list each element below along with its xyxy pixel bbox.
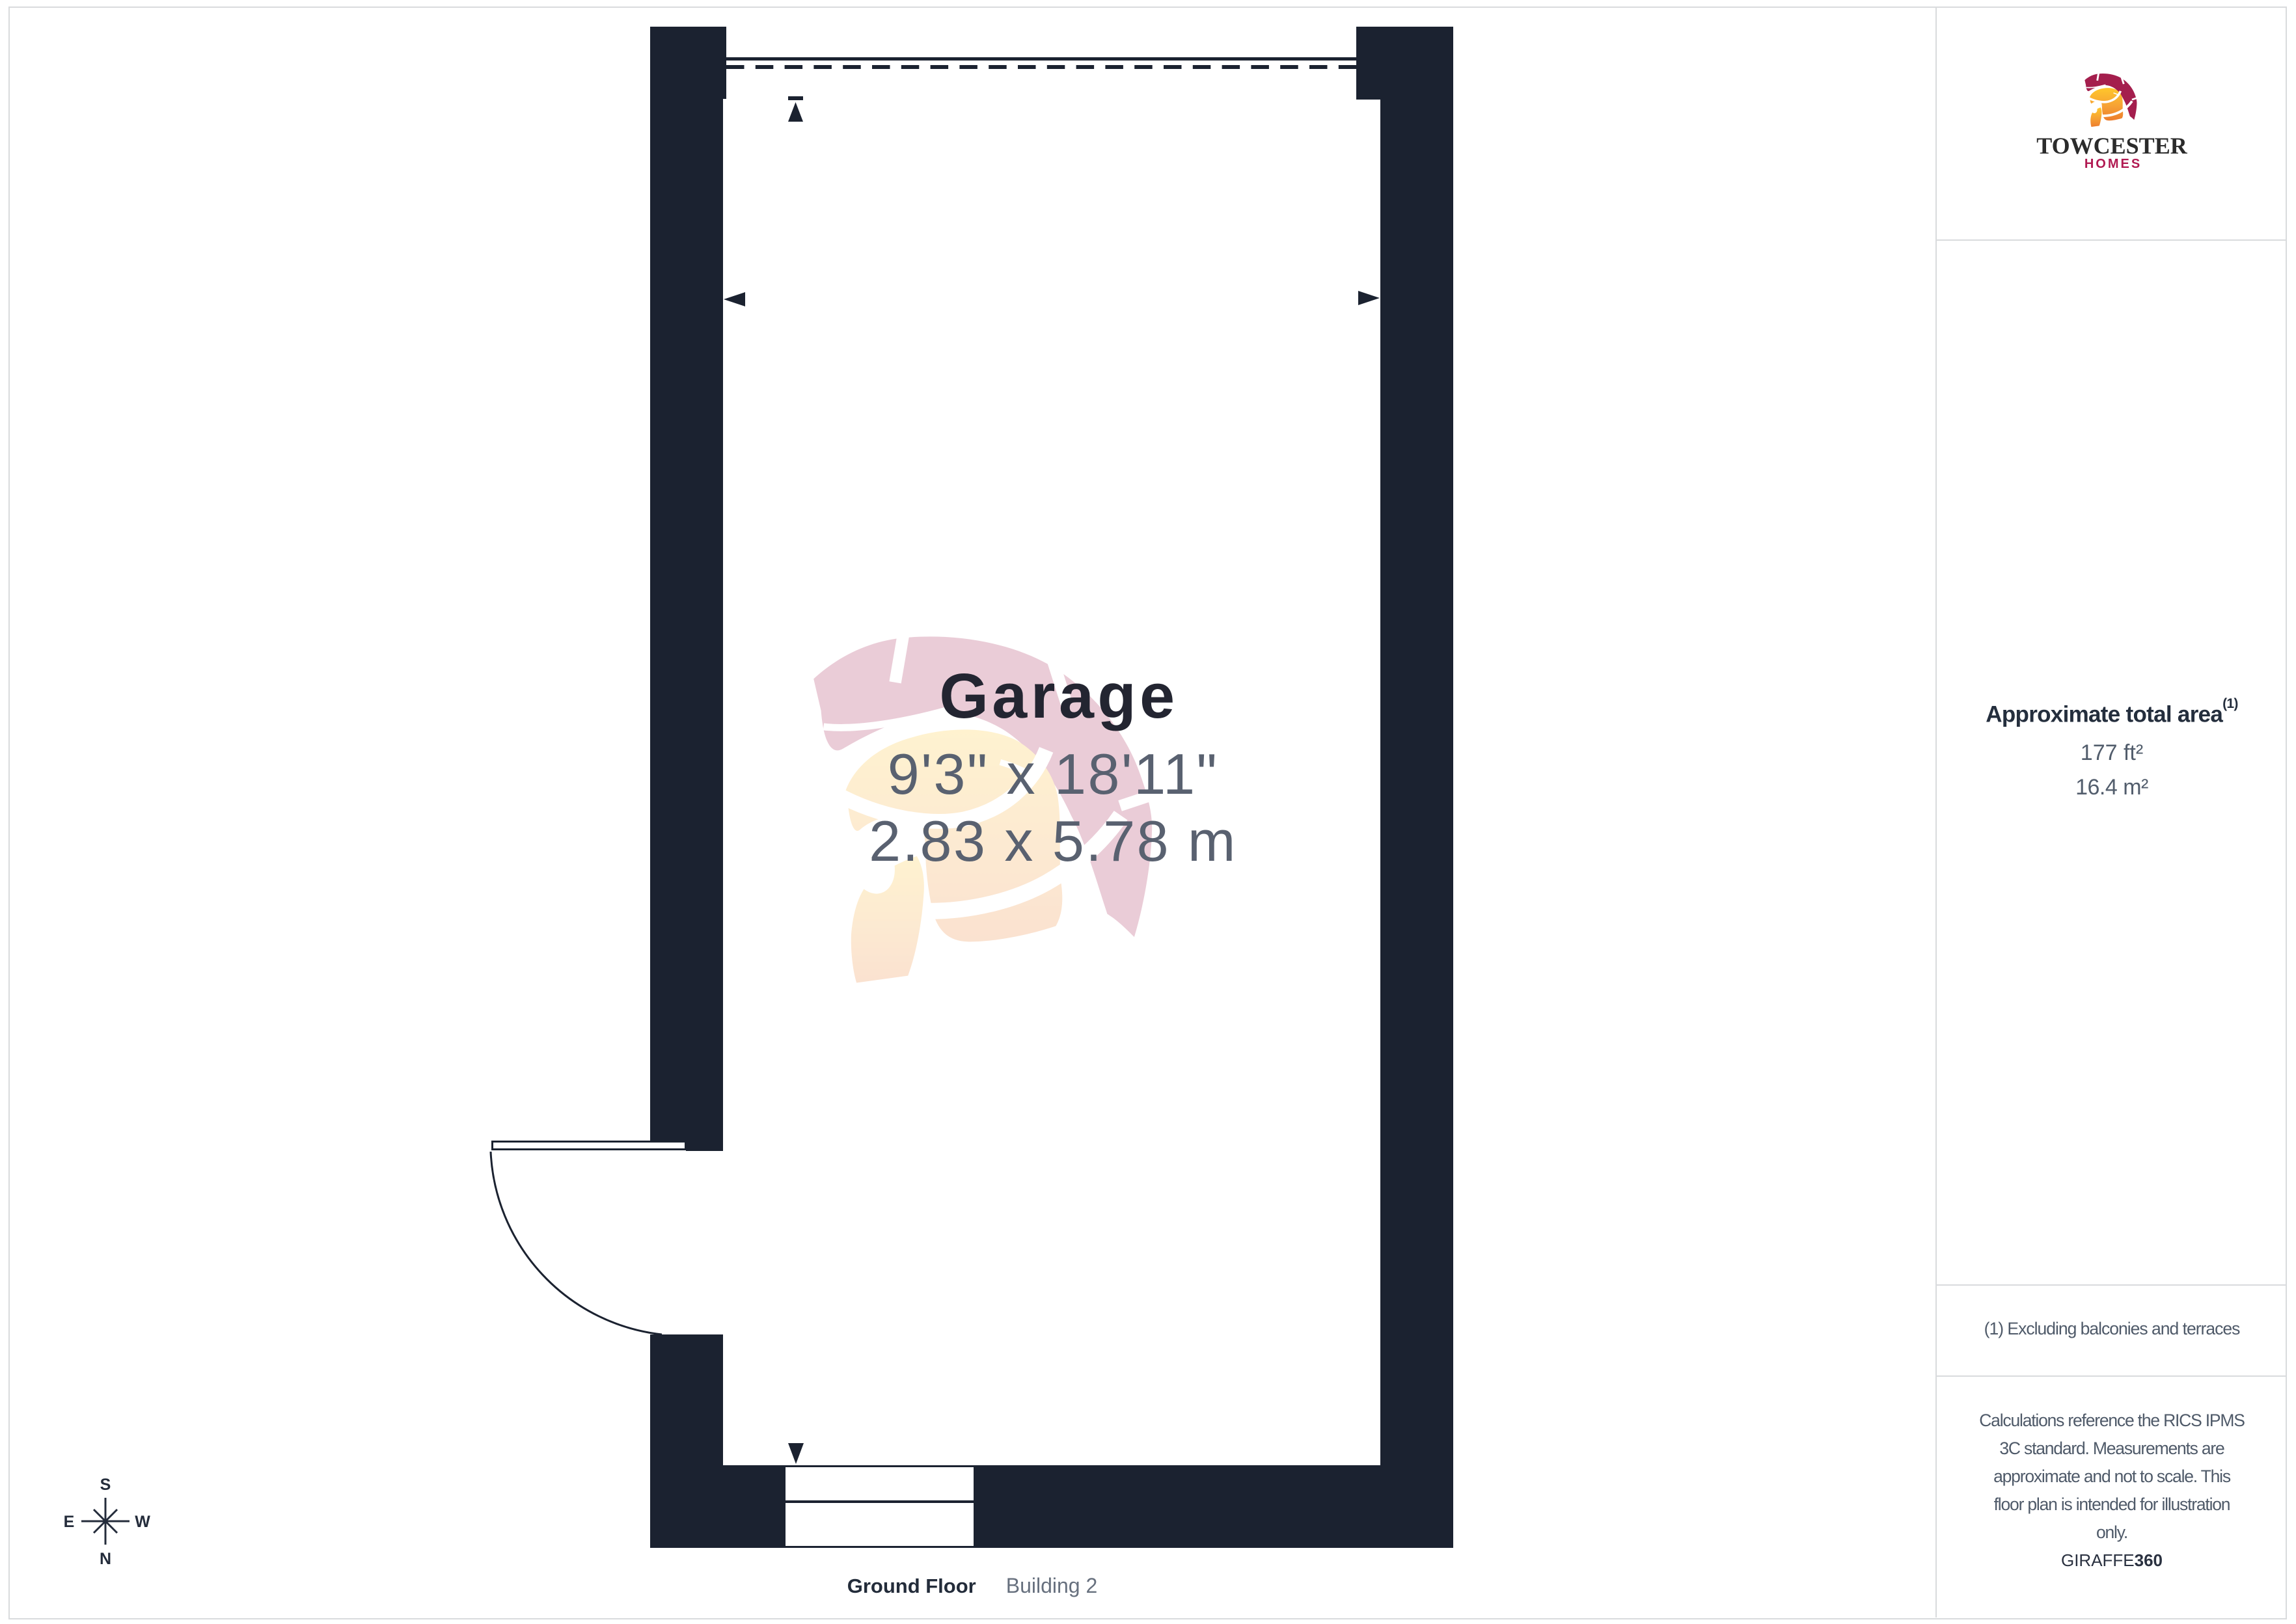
svg-text:E: E [64,1513,75,1531]
svg-text:N: N [100,1550,111,1568]
svg-text:S: S [100,1476,111,1494]
svg-text:W: W [135,1513,150,1531]
